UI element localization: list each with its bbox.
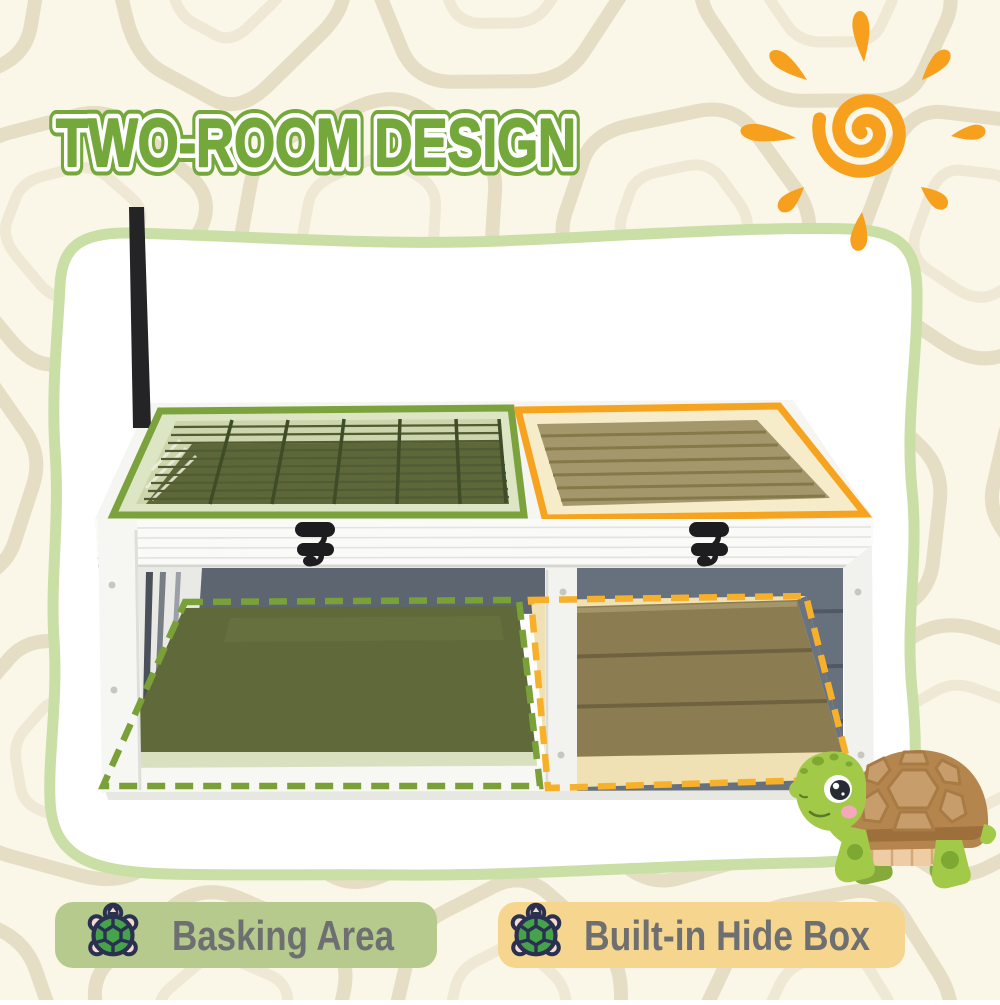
svg-text:Built-in Hide Box: Built-in Hide Box bbox=[584, 912, 871, 959]
svg-text:Basking Area: Basking Area bbox=[172, 912, 395, 959]
svg-text:TWO-ROOM DESIGN: TWO-ROOM DESIGN bbox=[56, 105, 576, 181]
